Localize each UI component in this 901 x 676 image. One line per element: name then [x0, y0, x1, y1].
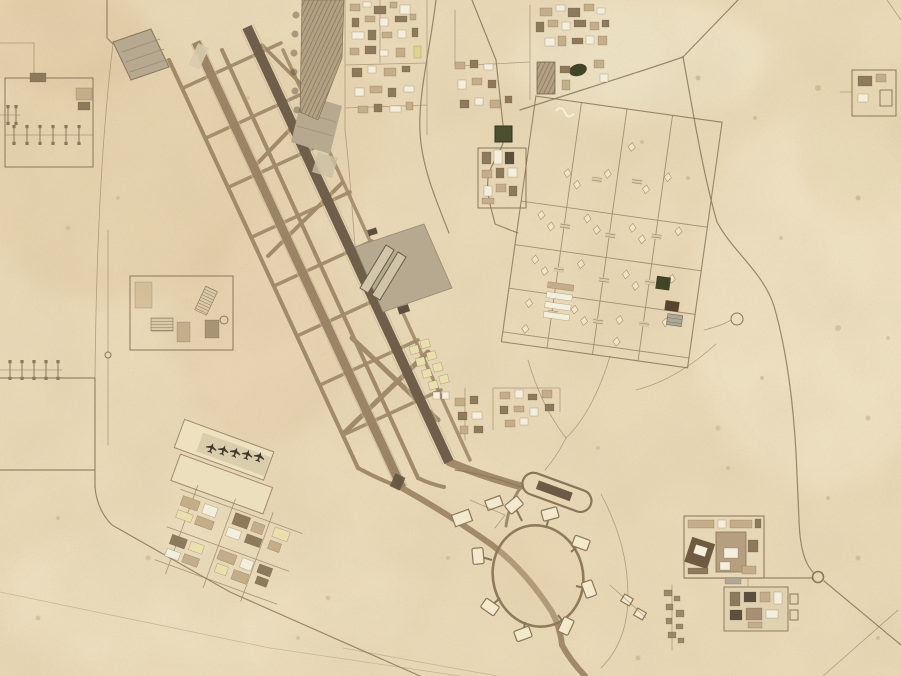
compound-b — [724, 587, 798, 631]
ribbed-warehouse — [537, 62, 555, 94]
compound-a — [684, 516, 764, 584]
sand-grain — [0, 0, 901, 676]
green-patch — [495, 126, 512, 142]
dark-patch — [655, 276, 671, 291]
desert-terrain — [0, 0, 901, 676]
satellite-image — [0, 0, 901, 676]
